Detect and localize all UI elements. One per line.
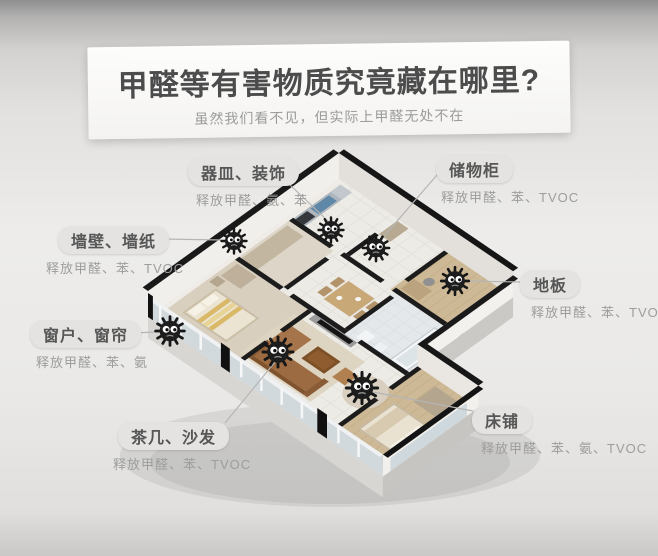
label-pill: 储物柜 <box>436 155 513 183</box>
label-emits: 释放甲醛、氨、苯 <box>196 190 308 209</box>
label-emits: 释放甲醛、苯、TVOC <box>531 302 658 321</box>
label-bed: 床铺 释放甲醛、苯、氨、TVOC <box>472 406 647 457</box>
label-emits: 释放甲醛、苯、TVOC <box>46 258 184 277</box>
label-pill: 茶几、沙发 <box>118 422 229 450</box>
label-emits: 释放甲醛、苯、氨 <box>36 352 148 371</box>
label-pill: 地板 <box>520 270 580 298</box>
label-emits: 释放甲醛、苯、氨、TVOC <box>481 438 647 457</box>
infographic-stage: 甲醛等有害物质究竟藏在哪里? 虽然我们看不见，但实际上甲醛无处不在 <box>0 0 658 556</box>
label-pill: 墙壁、墙纸 <box>58 226 169 254</box>
label-walls-wallpaper: 墙壁、墙纸 释放甲醛、苯、TVOC <box>58 226 184 277</box>
label-emits: 释放甲醛、苯、TVOC <box>441 187 579 206</box>
label-utensils-decor: 器皿、装饰 释放甲醛、氨、苯 <box>188 158 308 209</box>
label-pill: 器皿、装饰 <box>188 158 299 186</box>
label-emits: 释放甲醛、苯、TVOC <box>113 454 251 473</box>
label-pill: 窗户、窗帘 <box>30 320 141 348</box>
label-storage-cabinet: 储物柜 释放甲醛、苯、TVOC <box>436 155 579 206</box>
label-pill: 床铺 <box>472 406 532 434</box>
label-tea-table-sofa: 茶几、沙发 释放甲醛、苯、TVOC <box>118 422 251 473</box>
label-floor: 地板 释放甲醛、苯、TVOC <box>520 270 658 321</box>
label-windows-curtains: 窗户、窗帘 释放甲醛、苯、氨 <box>30 320 148 371</box>
